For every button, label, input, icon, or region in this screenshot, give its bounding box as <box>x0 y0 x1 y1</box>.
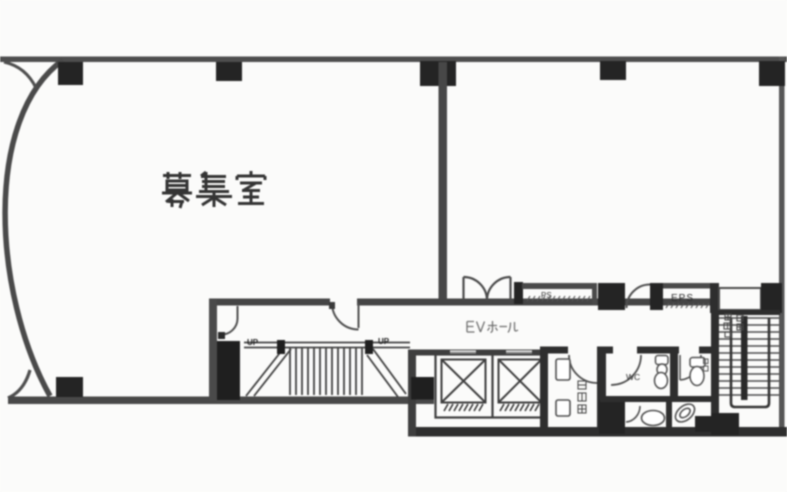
svg-text:PS: PS <box>541 291 552 300</box>
svg-text:EPS: EPS <box>671 293 694 304</box>
svg-text:UP: UP <box>247 338 259 347</box>
svg-text:UP: UP <box>378 337 390 346</box>
svg-text:WC: WC <box>626 372 640 382</box>
